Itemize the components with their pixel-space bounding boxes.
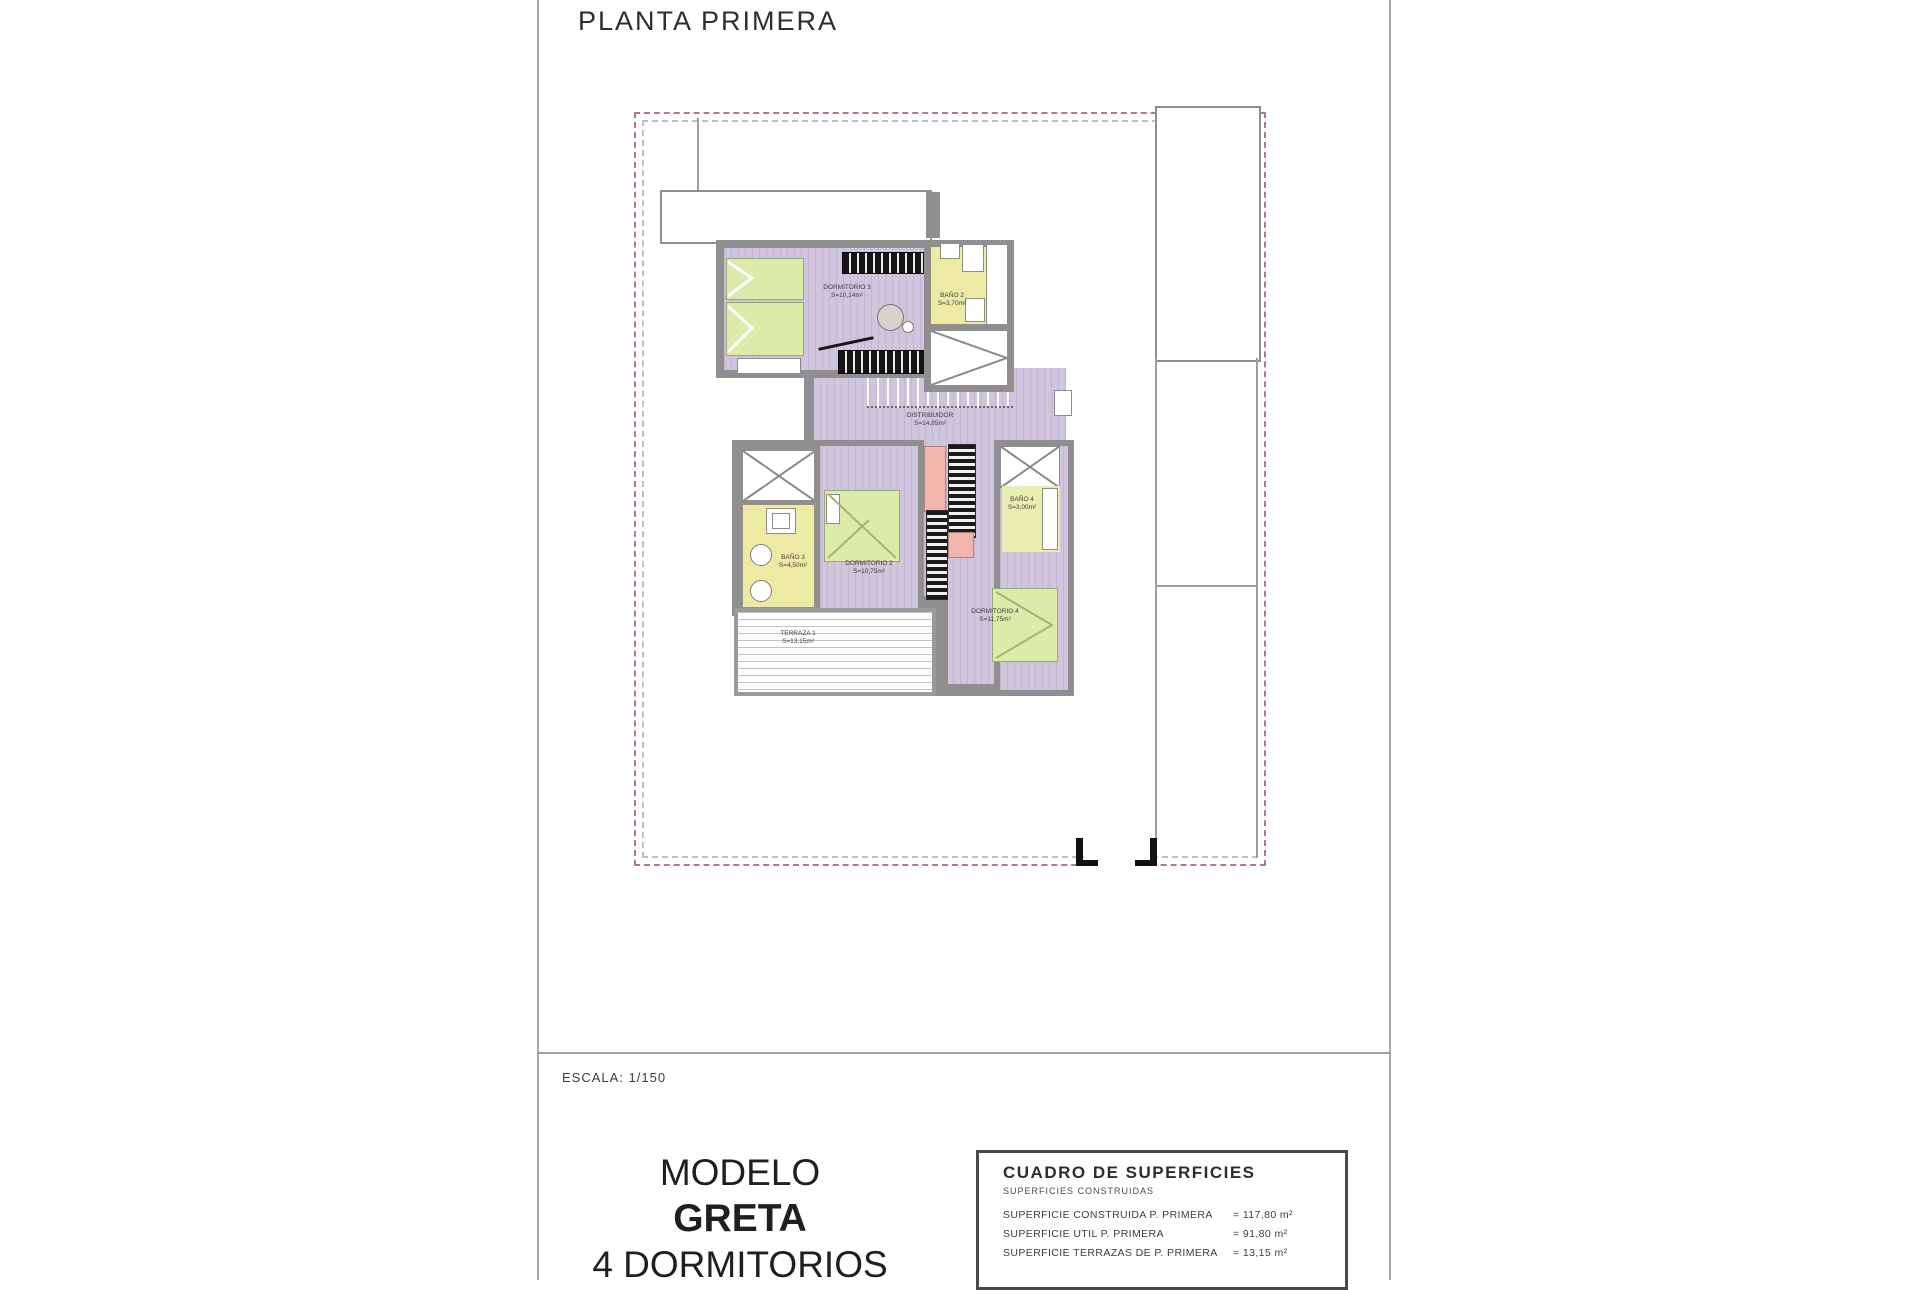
sink	[940, 243, 960, 259]
model-title-block: MODELO GRETA 4 DORMITORIOS	[555, 1152, 925, 1286]
sheet-border-right	[1389, 0, 1391, 1280]
wardrobe	[842, 252, 932, 274]
toilet	[750, 544, 772, 566]
row-value: = 13,15 m²	[1233, 1247, 1321, 1259]
gate-post-left-foot	[1076, 860, 1098, 866]
room-label-bano-4: BAÑO 4 S=3,00m²	[1002, 496, 1042, 512]
porch-roof-outline	[660, 190, 932, 244]
stair-landing	[924, 446, 946, 512]
bed-fold-lines	[992, 588, 1058, 662]
room-label-distribuidor: DISTRIBUIDOR S=14,85m²	[898, 412, 962, 428]
room-label-bano-3: BAÑO 3 S=4,50m²	[770, 554, 816, 570]
table-row: SUPERFICIE CONSTRUIDA P. PRIMERA = 117,8…	[1003, 1209, 1321, 1221]
room-terraza-1	[734, 608, 936, 696]
porch-roof-cap	[926, 192, 940, 238]
wall-niche	[1054, 390, 1072, 416]
shower	[1042, 488, 1058, 550]
bath-cabinet	[986, 244, 1008, 328]
sheet-border-left	[537, 0, 539, 1280]
bed-fold-lines	[726, 258, 756, 356]
table	[877, 304, 904, 331]
scale-label: ESCALA: 1/150	[562, 1070, 666, 1085]
bidet	[750, 580, 772, 602]
stair-treads	[926, 510, 948, 600]
surfaces-table-title: CUADRO DE SUPERFICIES	[1003, 1163, 1345, 1183]
closet-cross	[1000, 446, 1060, 488]
table-row: SUPERFICIE UTIL P. PRIMERA = 91,80 m²	[1003, 1228, 1321, 1240]
model-word: MODELO	[555, 1152, 925, 1194]
row-value: = 117,80 m²	[1233, 1209, 1321, 1221]
model-name: GRETA	[555, 1197, 925, 1241]
room-label-dormitorio-3: DORMITORIO 3 S=10,14m²	[812, 284, 882, 300]
bed-fold-lines	[824, 490, 900, 562]
surfaces-table-subtitle: SUPERFICIES CONSTRUIDAS	[1003, 1186, 1345, 1196]
row-label: SUPERFICIE UTIL P. PRIMERA	[1003, 1228, 1233, 1240]
room-label-terraza-1: TERRAZA 1 S=13,15m²	[766, 630, 830, 646]
room-label-bano-2: BAÑO 2 S=3,70m²	[928, 292, 976, 308]
closet-cross	[743, 451, 815, 501]
page-title: PLANTA PRIMERA	[578, 6, 838, 37]
gate-post-right-foot	[1135, 860, 1157, 866]
table-row: SUPERFICIE TERRAZAS DE P. PRIMERA = 13,1…	[1003, 1247, 1321, 1259]
surfaces-table-rows: SUPERFICIE CONSTRUIDA P. PRIMERA = 117,8…	[1003, 1209, 1321, 1259]
stair-void-cross	[931, 331, 1007, 385]
shower	[962, 244, 984, 272]
wardrobe	[838, 350, 932, 374]
chair	[902, 321, 914, 333]
site-line	[1155, 358, 1157, 858]
stair-treads	[948, 444, 976, 538]
site-line	[1256, 358, 1258, 858]
room-label-dormitorio-2: DORMITORIO 2 S=10,75m²	[832, 560, 906, 576]
wall	[804, 368, 814, 448]
sink-bowl	[772, 513, 790, 529]
site-line	[1155, 585, 1258, 587]
row-label: SUPERFICIE CONSTRUIDA P. PRIMERA	[1003, 1209, 1233, 1221]
row-label: SUPERFICIE TERRAZAS DE P. PRIMERA	[1003, 1247, 1233, 1259]
row-value: = 91,80 m²	[1233, 1228, 1321, 1240]
window	[737, 358, 801, 374]
plan-sheet: { "title": "PLANTA PRIMERA", "scale_labe…	[0, 0, 1920, 1280]
site-line	[697, 118, 699, 192]
sheet-divider	[537, 1052, 1391, 1054]
garage-roof-outline	[1155, 106, 1261, 362]
stair-landing	[948, 532, 974, 558]
room-label-dormitorio-4: DORMITORIO 4 S=11,75m²	[964, 608, 1026, 624]
surfaces-table: CUADRO DE SUPERFICIES SUPERFICIES CONSTR…	[976, 1150, 1348, 1290]
